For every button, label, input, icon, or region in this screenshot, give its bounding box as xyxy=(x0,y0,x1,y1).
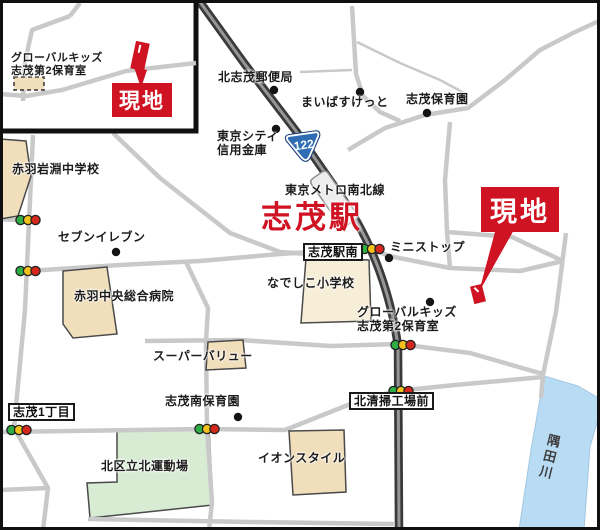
poi-dot-icon xyxy=(385,254,393,262)
label-shimo-nursery: 志茂保育園 xyxy=(406,92,469,106)
label-maibasuketto: まいばすけっと xyxy=(301,95,389,109)
traffic-light-icon xyxy=(16,215,40,224)
traffic-light-icon xyxy=(195,424,219,433)
label-ministop: ミニストップ xyxy=(390,240,465,254)
label-junior-high: 赤羽岩淵中学校 xyxy=(12,162,100,176)
label-hospital: 赤羽中央総合病院 xyxy=(74,289,174,303)
site-flag-inset: 現地 xyxy=(112,83,172,117)
traffic-light-icon xyxy=(391,340,415,349)
label-global-kids-line1: グローバルキッズ xyxy=(357,305,457,319)
poi-dot-icon xyxy=(234,413,242,421)
poi-dot-icon xyxy=(112,248,120,256)
label-super-value: スーパーバリュー xyxy=(153,349,253,363)
inset-poi-line2: 志茂第2保育室 xyxy=(11,65,103,78)
label-elementary: なでしこ小学校 xyxy=(267,276,355,290)
traffic-light-icon xyxy=(360,244,384,253)
label-shinkin-bank: 東京シティ 信用金庫 xyxy=(217,129,279,157)
label-global-kids: グローバルキッズ 志茂第2保育室 xyxy=(357,305,457,333)
label-shinkin-line2: 信用金庫 xyxy=(217,143,279,157)
route-number: 122 xyxy=(293,137,315,154)
site-flag-main: 現地 xyxy=(481,187,559,232)
inset-poi-line1: グローバルキッズ xyxy=(11,52,103,65)
sign-station-south: 志茂駅南 xyxy=(303,243,363,261)
label-sports-ground: 北区立北運動場 xyxy=(101,459,189,473)
map-canvas: 122 xyxy=(0,0,600,530)
road xyxy=(0,488,48,490)
traffic-light-icon xyxy=(16,266,40,275)
poi-dot-icon xyxy=(270,86,278,94)
station-name: 志茂駅 xyxy=(261,192,363,237)
label-shinkin-line1: 東京シティ xyxy=(217,129,279,143)
label-seven-eleven: セブンイレブン xyxy=(58,230,146,244)
sign-shimo-1chome: 志茂1丁目 xyxy=(8,403,75,421)
sign-cleaning-plant: 北清掃工場前 xyxy=(349,392,434,410)
building-shape xyxy=(14,77,44,90)
inset-poi-label: グローバルキッズ 志茂第2保育室 xyxy=(11,52,103,78)
label-minami-nursery: 志茂南保育園 xyxy=(165,394,240,408)
label-global-kids-line2: 志茂第2保育室 xyxy=(357,319,457,333)
label-post-office: 北志茂郵便局 xyxy=(218,70,293,84)
poi-dot-icon xyxy=(423,109,431,117)
label-aeon-style: イオンスタイル xyxy=(258,451,345,465)
traffic-light-icon xyxy=(7,425,31,434)
